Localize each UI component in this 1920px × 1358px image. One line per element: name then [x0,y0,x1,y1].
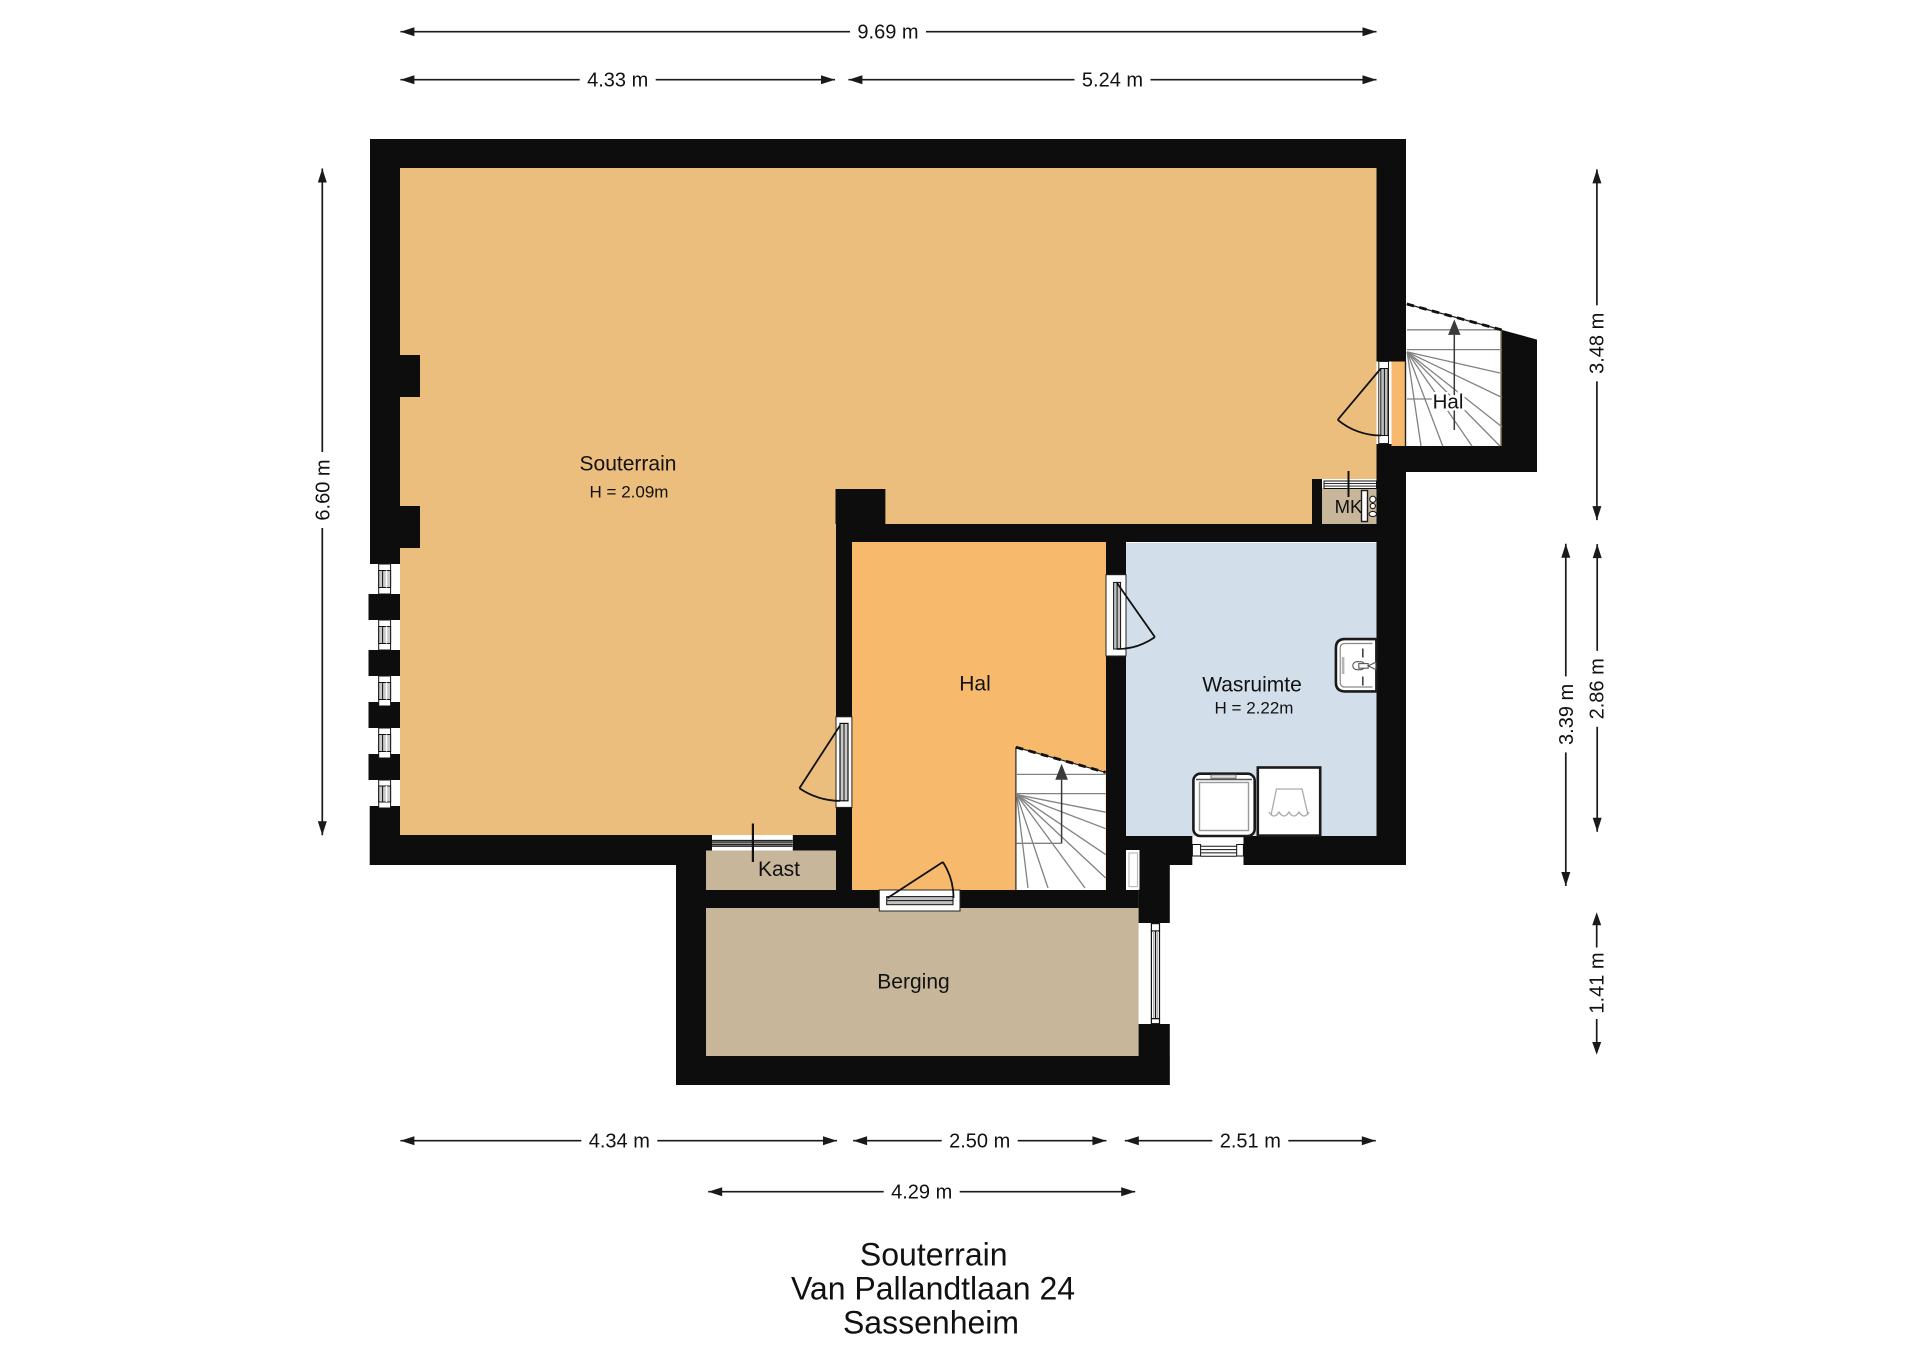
svg-text:Hal: Hal [959,672,991,695]
svg-text:2.51 m: 2.51 m [1220,1131,1281,1153]
svg-text:6.60 m: 6.60 m [313,459,335,520]
svg-text:4.29 m: 4.29 m [891,1182,952,1204]
svg-text:Sassenheim: Sassenheim [843,1305,1019,1341]
svg-text:3.48 m: 3.48 m [1587,313,1609,374]
svg-text:3.39 m: 3.39 m [1556,684,1578,745]
svg-text:4.33 m: 4.33 m [587,70,648,92]
svg-text:H = 2.09m: H = 2.09m [590,483,669,502]
svg-text:5.24 m: 5.24 m [1082,70,1143,92]
svg-text:Souterrain: Souterrain [860,1237,1008,1273]
svg-text:Van Pallandtlaan 24: Van Pallandtlaan 24 [791,1271,1075,1307]
svg-text:Hal: Hal [1433,391,1464,414]
svg-text:Berging: Berging [877,971,949,994]
svg-text:Kast: Kast [758,858,800,881]
svg-text:Wasruimte: Wasruimte [1202,674,1302,697]
svg-text:2.50 m: 2.50 m [949,1131,1010,1153]
svg-text:Souterrain: Souterrain [580,452,677,475]
svg-text:H = 2.22m: H = 2.22m [1215,699,1294,718]
svg-text:2.86 m: 2.86 m [1587,658,1609,719]
svg-text:9.69 m: 9.69 m [857,22,918,44]
svg-text:4.34 m: 4.34 m [589,1131,650,1153]
svg-text:1.41 m: 1.41 m [1587,952,1609,1013]
svg-text:MK: MK [1335,496,1363,517]
